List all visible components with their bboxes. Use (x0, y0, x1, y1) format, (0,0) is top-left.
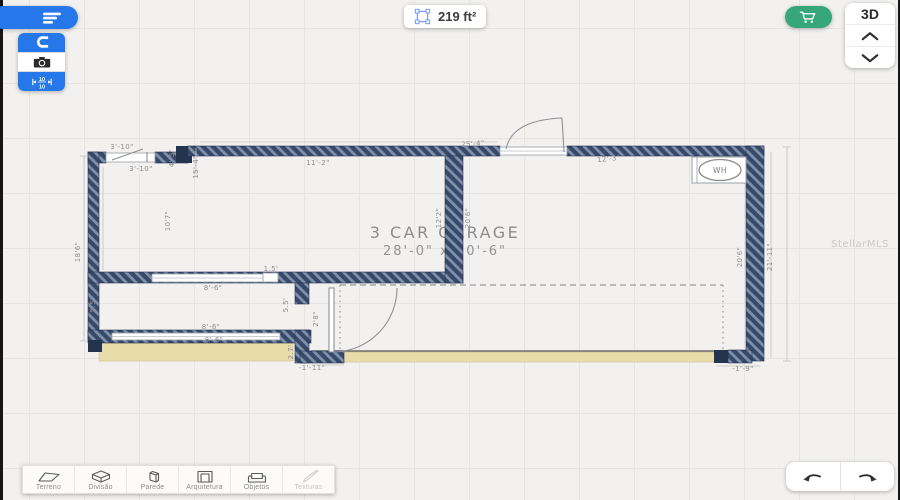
magnet-snap-button[interactable] (18, 33, 65, 52)
apron-left[interactable] (99, 343, 293, 361)
toolbar-item-label: Arquitetura (186, 484, 222, 491)
opening-middle-gap[interactable] (263, 273, 278, 282)
wall-center-vertical (445, 156, 463, 283)
wall-corner-bottom-left (88, 340, 102, 352)
dimension-label: 20'6" (736, 247, 744, 268)
dimension-label: -1'-9" (732, 365, 754, 373)
toolbar-item-label: Divisão (88, 484, 112, 491)
water-heater-label: WH (713, 166, 727, 175)
bottom-toolbar: TerrenoDivisãoParedeArquiteturaObjetosTe… (22, 465, 335, 494)
menu-lines-icon (41, 10, 63, 26)
menu-button[interactable] (0, 6, 78, 29)
camera-icon (32, 55, 52, 69)
camera-button[interactable] (18, 52, 65, 73)
zoom-out-button[interactable] (845, 46, 895, 68)
area-value: 219 ft² (438, 9, 476, 24)
dimension-label: 12'2" (435, 208, 443, 229)
garage-door-dashed-outline[interactable] (340, 285, 723, 351)
magnet-icon (32, 34, 52, 50)
dimension-label: 5.5' (282, 298, 290, 313)
wall-right (746, 146, 764, 361)
dimension-label: -1'-11" (299, 364, 325, 372)
dimension-label: 2.7' (287, 345, 295, 360)
undo-button[interactable] (786, 462, 840, 491)
toolbar-item-texturas[interactable]: Texturas (283, 466, 334, 493)
dimension-label: 4'-5" (168, 149, 176, 168)
snap-tools-group: 10 10 (18, 33, 65, 91)
water-heater[interactable]: WH (692, 157, 746, 183)
undo-arrow-icon (801, 470, 825, 484)
dimension-label: 25'-4" (461, 139, 485, 149)
terrain-icon (37, 469, 61, 484)
wall-top-main-left (188, 146, 500, 156)
paint-brush-icon (297, 469, 321, 484)
dimension-label: 11'-2" (306, 159, 329, 167)
dimension-label: 18'6" (74, 242, 82, 263)
dimension-label: 8'-6" (205, 336, 224, 344)
dimension-label: 5.5' (89, 298, 97, 313)
opening-top-left[interactable] (106, 153, 155, 162)
svg-text:10: 10 (38, 84, 44, 90)
room-box-icon (89, 469, 113, 484)
toolbar-item-terreno[interactable]: Terreno (23, 466, 75, 493)
toolbar-item-label: Texturas (294, 484, 322, 491)
chevron-up-icon (860, 31, 880, 41)
toolbar-item-arquitetura[interactable]: Arquitetura (179, 466, 231, 493)
toolbar-item-objetos[interactable]: Objetos (231, 466, 283, 493)
redo-arrow-icon (855, 470, 879, 484)
cart-button[interactable] (785, 6, 832, 28)
toolbar-item-divisao[interactable]: Divisão (75, 466, 127, 493)
dimension-label: 2'8" (312, 311, 320, 327)
floorplanner-app: 3 CAR GARAGE 28'-0" x 20'-6" (0, 0, 900, 500)
area-select-icon (414, 8, 431, 25)
wall-vestibule-a (295, 283, 309, 304)
wall-return-bottom-right (728, 350, 752, 363)
view-3d-button[interactable]: 3D (845, 3, 895, 24)
screen-edge-left (0, 0, 3, 500)
dimension-10-10-icon: 10 10 (31, 74, 53, 90)
area-badge[interactable]: 219 ft² (404, 5, 486, 28)
dimension-label: 3'-10" (110, 143, 133, 151)
wall-left (88, 152, 99, 342)
dimension-label: 12'-3" (597, 154, 621, 164)
cart-icon (799, 9, 818, 25)
watermark: StellarMLS (831, 239, 889, 250)
dimension-label: 21'-11" (766, 243, 774, 271)
toolbar-item-label: Terreno (36, 484, 61, 491)
toolbar-item-parede[interactable]: Parede (127, 466, 179, 493)
dimension-label: 10'7" (164, 211, 172, 232)
sofa-icon (245, 469, 269, 484)
floorplan-canvas[interactable]: 3 CAR GARAGE 28'-0" x 20'-6" (0, 0, 900, 500)
wall-garage-jamb-left (300, 351, 344, 363)
svg-text:10: 10 (38, 77, 44, 83)
history-controls (786, 462, 894, 491)
door-vestibule-swing[interactable] (329, 288, 397, 352)
redo-button[interactable] (840, 462, 895, 491)
dimension-label: 20'6" (464, 208, 472, 229)
toolbar-item-label: Parede (141, 484, 165, 491)
zoom-in-button[interactable] (845, 24, 895, 46)
dimension-label: 8'-6" (204, 284, 223, 292)
apron-right[interactable] (311, 352, 717, 362)
view-switcher: 3D (845, 3, 895, 68)
wall-top-main-right (567, 146, 764, 156)
toolbar-item-label: Objetos (244, 484, 270, 491)
dimensions-toggle-button[interactable]: 10 10 (18, 72, 65, 91)
chevron-down-icon (860, 53, 880, 63)
dimension-label: 15'-4" (192, 155, 200, 178)
view-3d-label: 3D (861, 6, 879, 22)
wall-icon (141, 469, 165, 484)
door-frame-icon (193, 469, 217, 484)
dimension-label: 1.5' (264, 265, 279, 273)
wall-corner-bottom-right (714, 350, 729, 363)
dimension-label: 8'-6" (202, 323, 221, 331)
dimension-label: 3'-10" (129, 165, 152, 173)
